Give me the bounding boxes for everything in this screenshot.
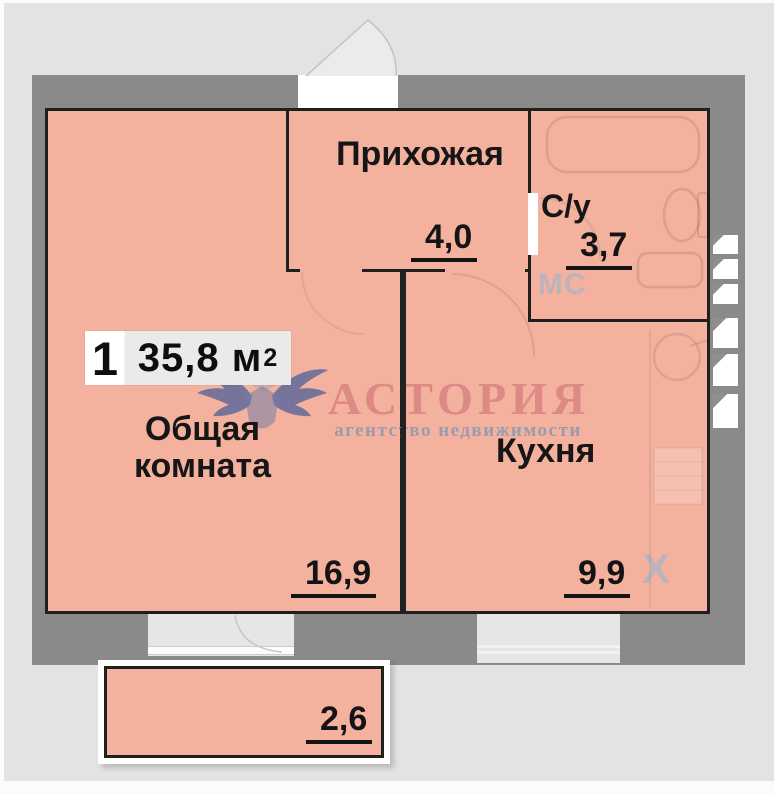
- vent-notch-icon: [713, 235, 738, 254]
- living-door-opening: [300, 266, 362, 274]
- vent-notch-icon: [713, 394, 738, 428]
- kitchen-label: Кухня: [496, 433, 595, 470]
- floor-plan: АСТОРИЯ агентство недвижимости Прихожая …: [0, 0, 774, 794]
- vent-notch-icon: [713, 284, 738, 304]
- stove-marker: Х: [642, 545, 670, 593]
- hallway-label: Прихожая: [305, 136, 535, 173]
- total-area: 35,8 м2: [125, 331, 291, 385]
- balcony-area: 2,6: [306, 702, 372, 744]
- vent-notch-icon: [713, 259, 738, 279]
- bathroom-area: 3,7: [566, 228, 632, 270]
- kitchen-door-opening: [445, 266, 525, 274]
- bathroom-door-opening: [528, 193, 538, 255]
- image-edge: [0, 0, 774, 3]
- total-area-unit: м: [232, 336, 263, 381]
- living-label-line1: Общая: [90, 411, 315, 448]
- image-edge: [0, 0, 4, 794]
- image-edge: [0, 781, 774, 794]
- vent-notch-icon: [713, 318, 738, 348]
- kitchen-window-opening: [477, 614, 620, 663]
- living-label-line2: комната: [90, 448, 315, 485]
- vent-notch-icon: [713, 354, 738, 386]
- balcony-door-sill: [148, 646, 294, 655]
- area-badge: 1 35,8 м2: [85, 331, 291, 385]
- bathroom-label: С/у: [541, 189, 591, 224]
- room-count: 1: [85, 331, 125, 385]
- living-label: Общая комната: [90, 411, 315, 486]
- hallway-area: 4,0: [411, 220, 477, 262]
- entrance-door-opening: [298, 75, 398, 108]
- partition-wall: [401, 271, 406, 612]
- total-area-value: 35,8: [138, 336, 220, 381]
- kitchen-window-sill: [477, 645, 620, 654]
- washing-machine-marker: МС: [538, 268, 587, 302]
- living-area: 16,9: [291, 556, 376, 598]
- kitchen-area: 9,9: [564, 556, 630, 598]
- entrance-door-arc-icon: [306, 20, 396, 76]
- watermark-brand: АСТОРИЯ: [325, 372, 593, 425]
